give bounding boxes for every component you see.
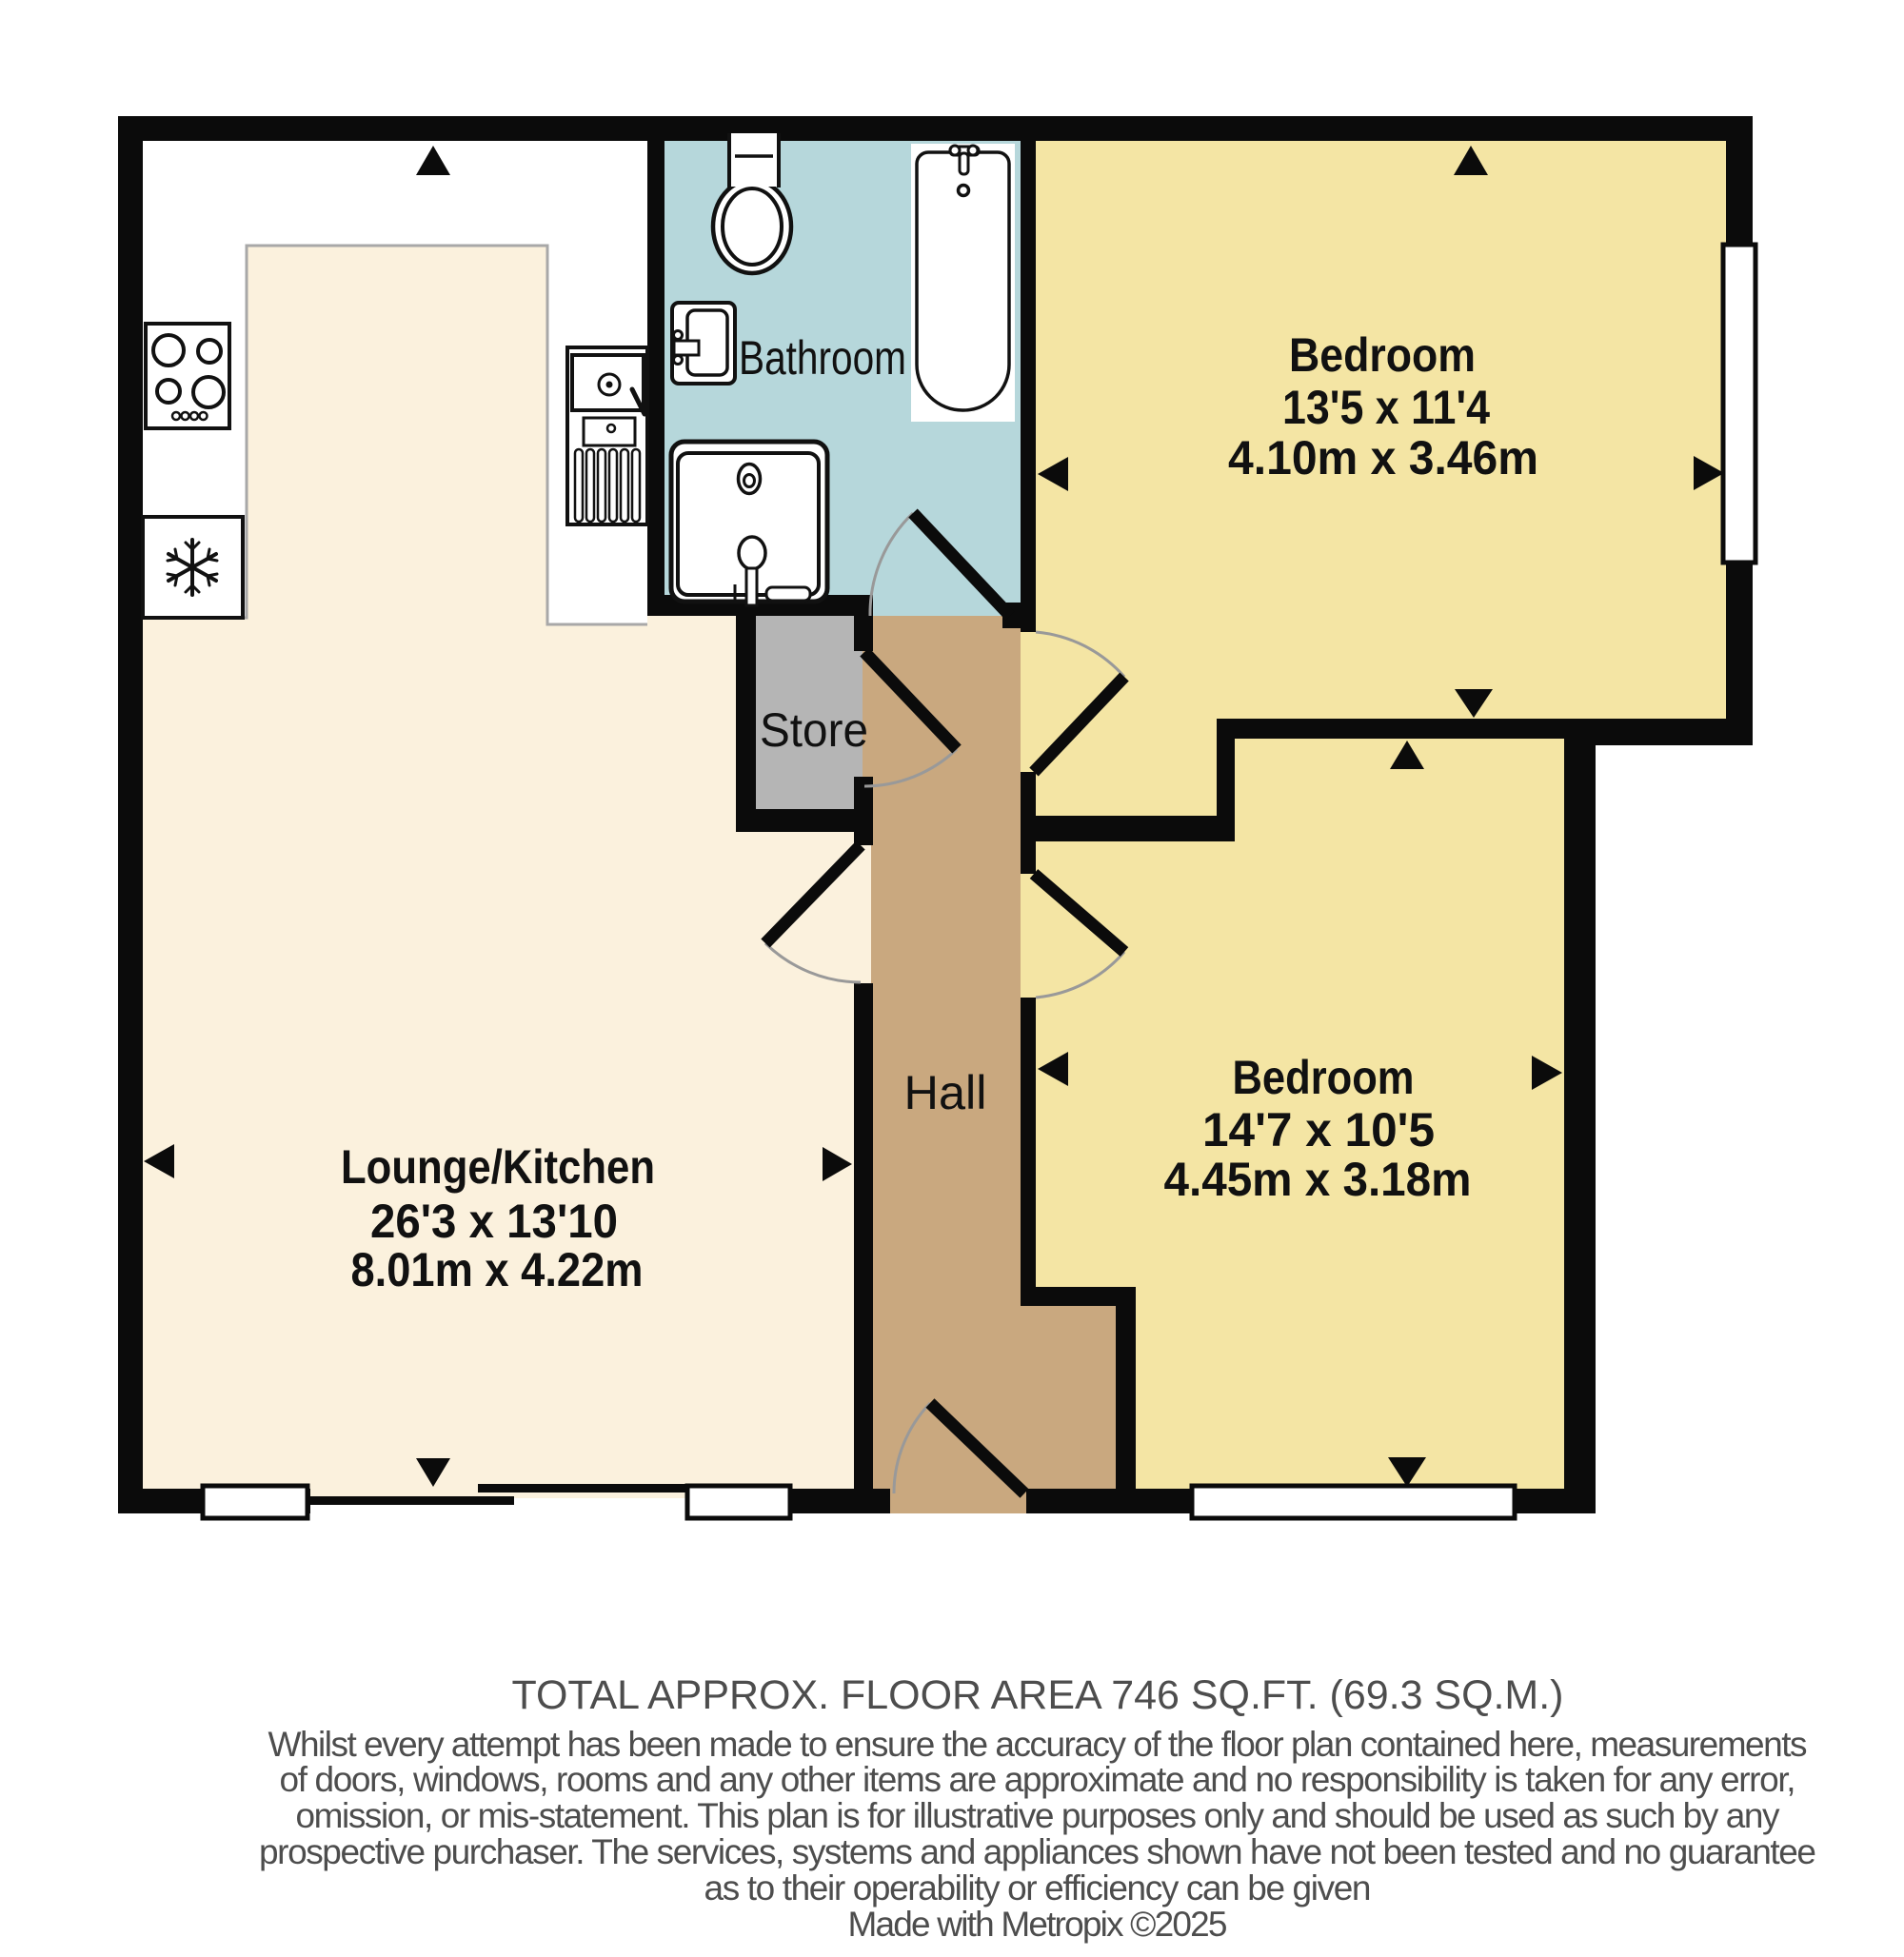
svg-text:TOTAL APPROX. FLOOR AREA 746 S: TOTAL APPROX. FLOOR AREA 746 SQ.FT. (69.… — [512, 1672, 1564, 1718]
svg-text:as to their operability or eff: as to their operability or efficiency ca… — [704, 1868, 1372, 1908]
svg-text:8.01m x 4.22m: 8.01m x 4.22m — [351, 1243, 644, 1296]
svg-text:Bathroom: Bathroom — [739, 331, 906, 385]
svg-text:Made with Metropix ©2025: Made with Metropix ©2025 — [848, 1905, 1228, 1944]
svg-text:Store: Store — [760, 703, 868, 757]
svg-text:Lounge/Kitchen: Lounge/Kitchen — [341, 1140, 655, 1194]
svg-text:omission, or mis-statement. Th: omission, or mis-statement. This plan is… — [296, 1796, 1780, 1835]
svg-text:26'3 x 13'10: 26'3 x 13'10 — [370, 1195, 618, 1248]
svg-text:13'5 x 11'4: 13'5 x 11'4 — [1282, 381, 1490, 434]
svg-text:Hall: Hall — [904, 1066, 987, 1119]
svg-text:4.45m x 3.18m: 4.45m x 3.18m — [1164, 1153, 1472, 1206]
svg-text:4.10m x 3.46m: 4.10m x 3.46m — [1228, 431, 1538, 484]
svg-text:of doors, windows, rooms and a: of doors, windows, rooms and any other i… — [280, 1760, 1796, 1799]
svg-text:Bedroom: Bedroom — [1233, 1051, 1415, 1104]
svg-text:prospective purchaser. The ser: prospective purchaser. The services, sys… — [259, 1832, 1816, 1871]
svg-text:Whilst every attempt has been: Whilst every attempt has been made to en… — [268, 1725, 1808, 1764]
svg-text:14'7 x 10'5: 14'7 x 10'5 — [1202, 1103, 1435, 1156]
svg-text:Bedroom: Bedroom — [1289, 328, 1476, 382]
